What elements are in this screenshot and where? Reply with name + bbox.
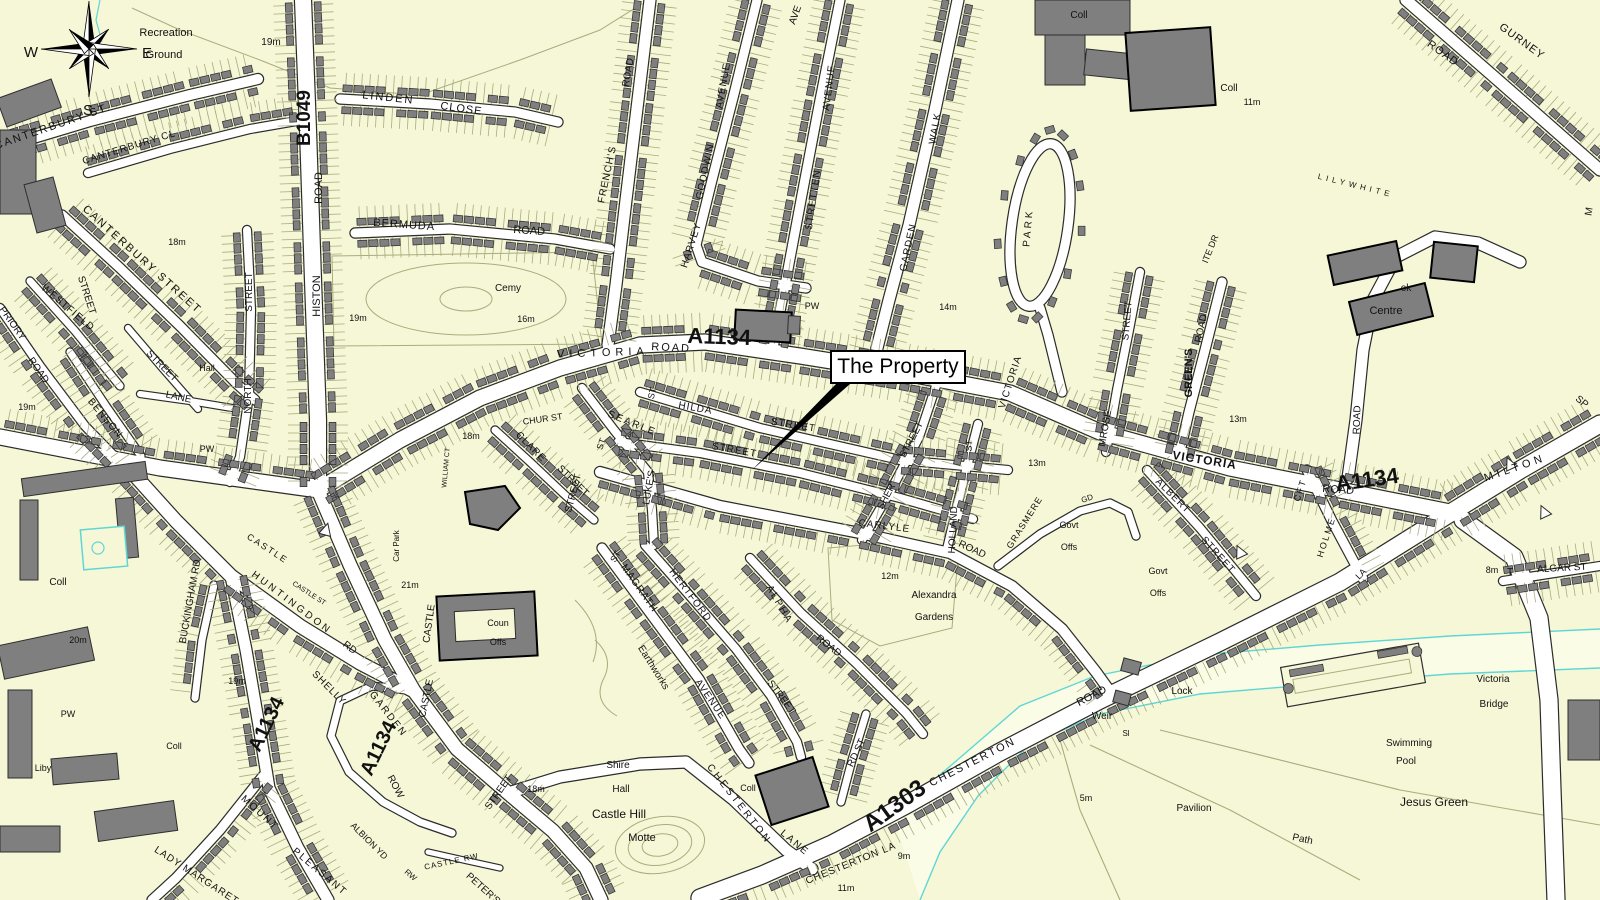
map-label: A1134: [687, 323, 752, 350]
map-label: PW: [61, 709, 76, 719]
map-label: Coll: [740, 783, 756, 793]
map-label: PW: [200, 444, 215, 454]
map-label: Shire: [606, 760, 630, 771]
map-label: ok: [1401, 283, 1413, 294]
building: [1568, 700, 1600, 760]
map-label: Pavilion: [1176, 803, 1211, 814]
building: [1045, 35, 1085, 85]
map-label: 19m: [228, 676, 246, 686]
map-label: Lock: [1171, 686, 1193, 697]
map-label: 5m: [1080, 793, 1093, 803]
map-label: Offs: [1061, 542, 1078, 552]
map-label: T: [1507, 567, 1513, 578]
map-label: NORTH: [243, 378, 254, 413]
map-label: Coll: [166, 741, 182, 751]
map-label: ST: [964, 439, 975, 452]
map-label: 18m: [168, 237, 186, 247]
map-label: Jesus Green: [1400, 795, 1468, 809]
map-label: Gardens: [915, 612, 953, 623]
map-label: 16m: [517, 314, 535, 324]
map-label: Motte: [628, 832, 656, 844]
map-canvas: WESRecreationGround19mCANTERBURY STCANTE…: [0, 0, 1600, 900]
map-label: Cemy: [495, 283, 521, 294]
map-label: PW: [805, 301, 820, 311]
map-label: Coll: [1070, 10, 1087, 21]
map-label: 19m: [349, 313, 367, 323]
map-label: 13m: [1229, 414, 1247, 424]
map-label: Centre: [1369, 305, 1402, 317]
map-label: Bridge: [1480, 699, 1509, 710]
map-label: Victoria: [1476, 674, 1510, 685]
map-label: Weir: [1092, 711, 1113, 722]
property-callout: The Property: [830, 350, 966, 384]
map-label: 11m: [1244, 97, 1261, 107]
map-label: Govt: [1059, 520, 1079, 530]
map-label: 9m: [898, 851, 911, 861]
map-label: 19m: [261, 37, 280, 48]
map-label: ROAD: [513, 224, 546, 238]
map-label: Coll: [49, 577, 66, 588]
map-label: Car Park: [392, 529, 401, 562]
map-label: B1049: [294, 90, 315, 146]
map-label: Castle Hill: [592, 807, 646, 821]
map-label: HISTON: [311, 275, 323, 316]
map-label: 11m: [838, 883, 855, 893]
building: [0, 826, 60, 852]
building: [1430, 242, 1478, 282]
map-label: Sl: [1122, 729, 1129, 738]
map-label: Recreation: [139, 27, 192, 39]
map-label: 8m: [1486, 565, 1499, 575]
map-label: STREET: [244, 272, 255, 311]
building: [51, 753, 119, 785]
building: [8, 690, 32, 778]
map-label: ROAD: [651, 341, 691, 355]
map-label: 18m: [462, 431, 480, 441]
map-label: 18m: [527, 784, 545, 794]
building: [788, 316, 801, 335]
map-label: 13m: [1028, 458, 1046, 468]
map-label: Swimming: [1386, 738, 1432, 749]
map-label: 20m: [69, 635, 87, 645]
map-label: 21m: [401, 580, 419, 590]
map-label: Pool: [1396, 756, 1416, 767]
property-callout-label: The Property: [837, 355, 958, 379]
map-label: ROAD: [313, 172, 325, 204]
map-label: 19m: [18, 402, 36, 412]
building: [20, 500, 38, 580]
map-viewport: WESRecreationGround19mCANTERBURY STCANTE…: [0, 0, 1600, 900]
map-label: Offs: [490, 637, 507, 647]
map-label: Coll: [1220, 83, 1237, 94]
map-label: Govt: [1148, 566, 1168, 576]
map-label: ROAD: [1352, 405, 1364, 434]
map-label: Hall: [612, 784, 629, 795]
map-label: Alexandra: [911, 590, 956, 601]
building: [1125, 27, 1215, 111]
map-label: 12m: [881, 571, 899, 581]
map-label: Coun: [487, 618, 509, 628]
map-label: Hall: [199, 363, 215, 373]
compass-letter-west: W: [24, 44, 39, 61]
map-label: Offs: [1150, 588, 1167, 598]
map-label: GREEN'S: [1183, 348, 1195, 397]
map-label: 14m: [939, 302, 957, 312]
map-label: Liby: [35, 763, 52, 773]
map-label: Ground: [146, 49, 183, 61]
